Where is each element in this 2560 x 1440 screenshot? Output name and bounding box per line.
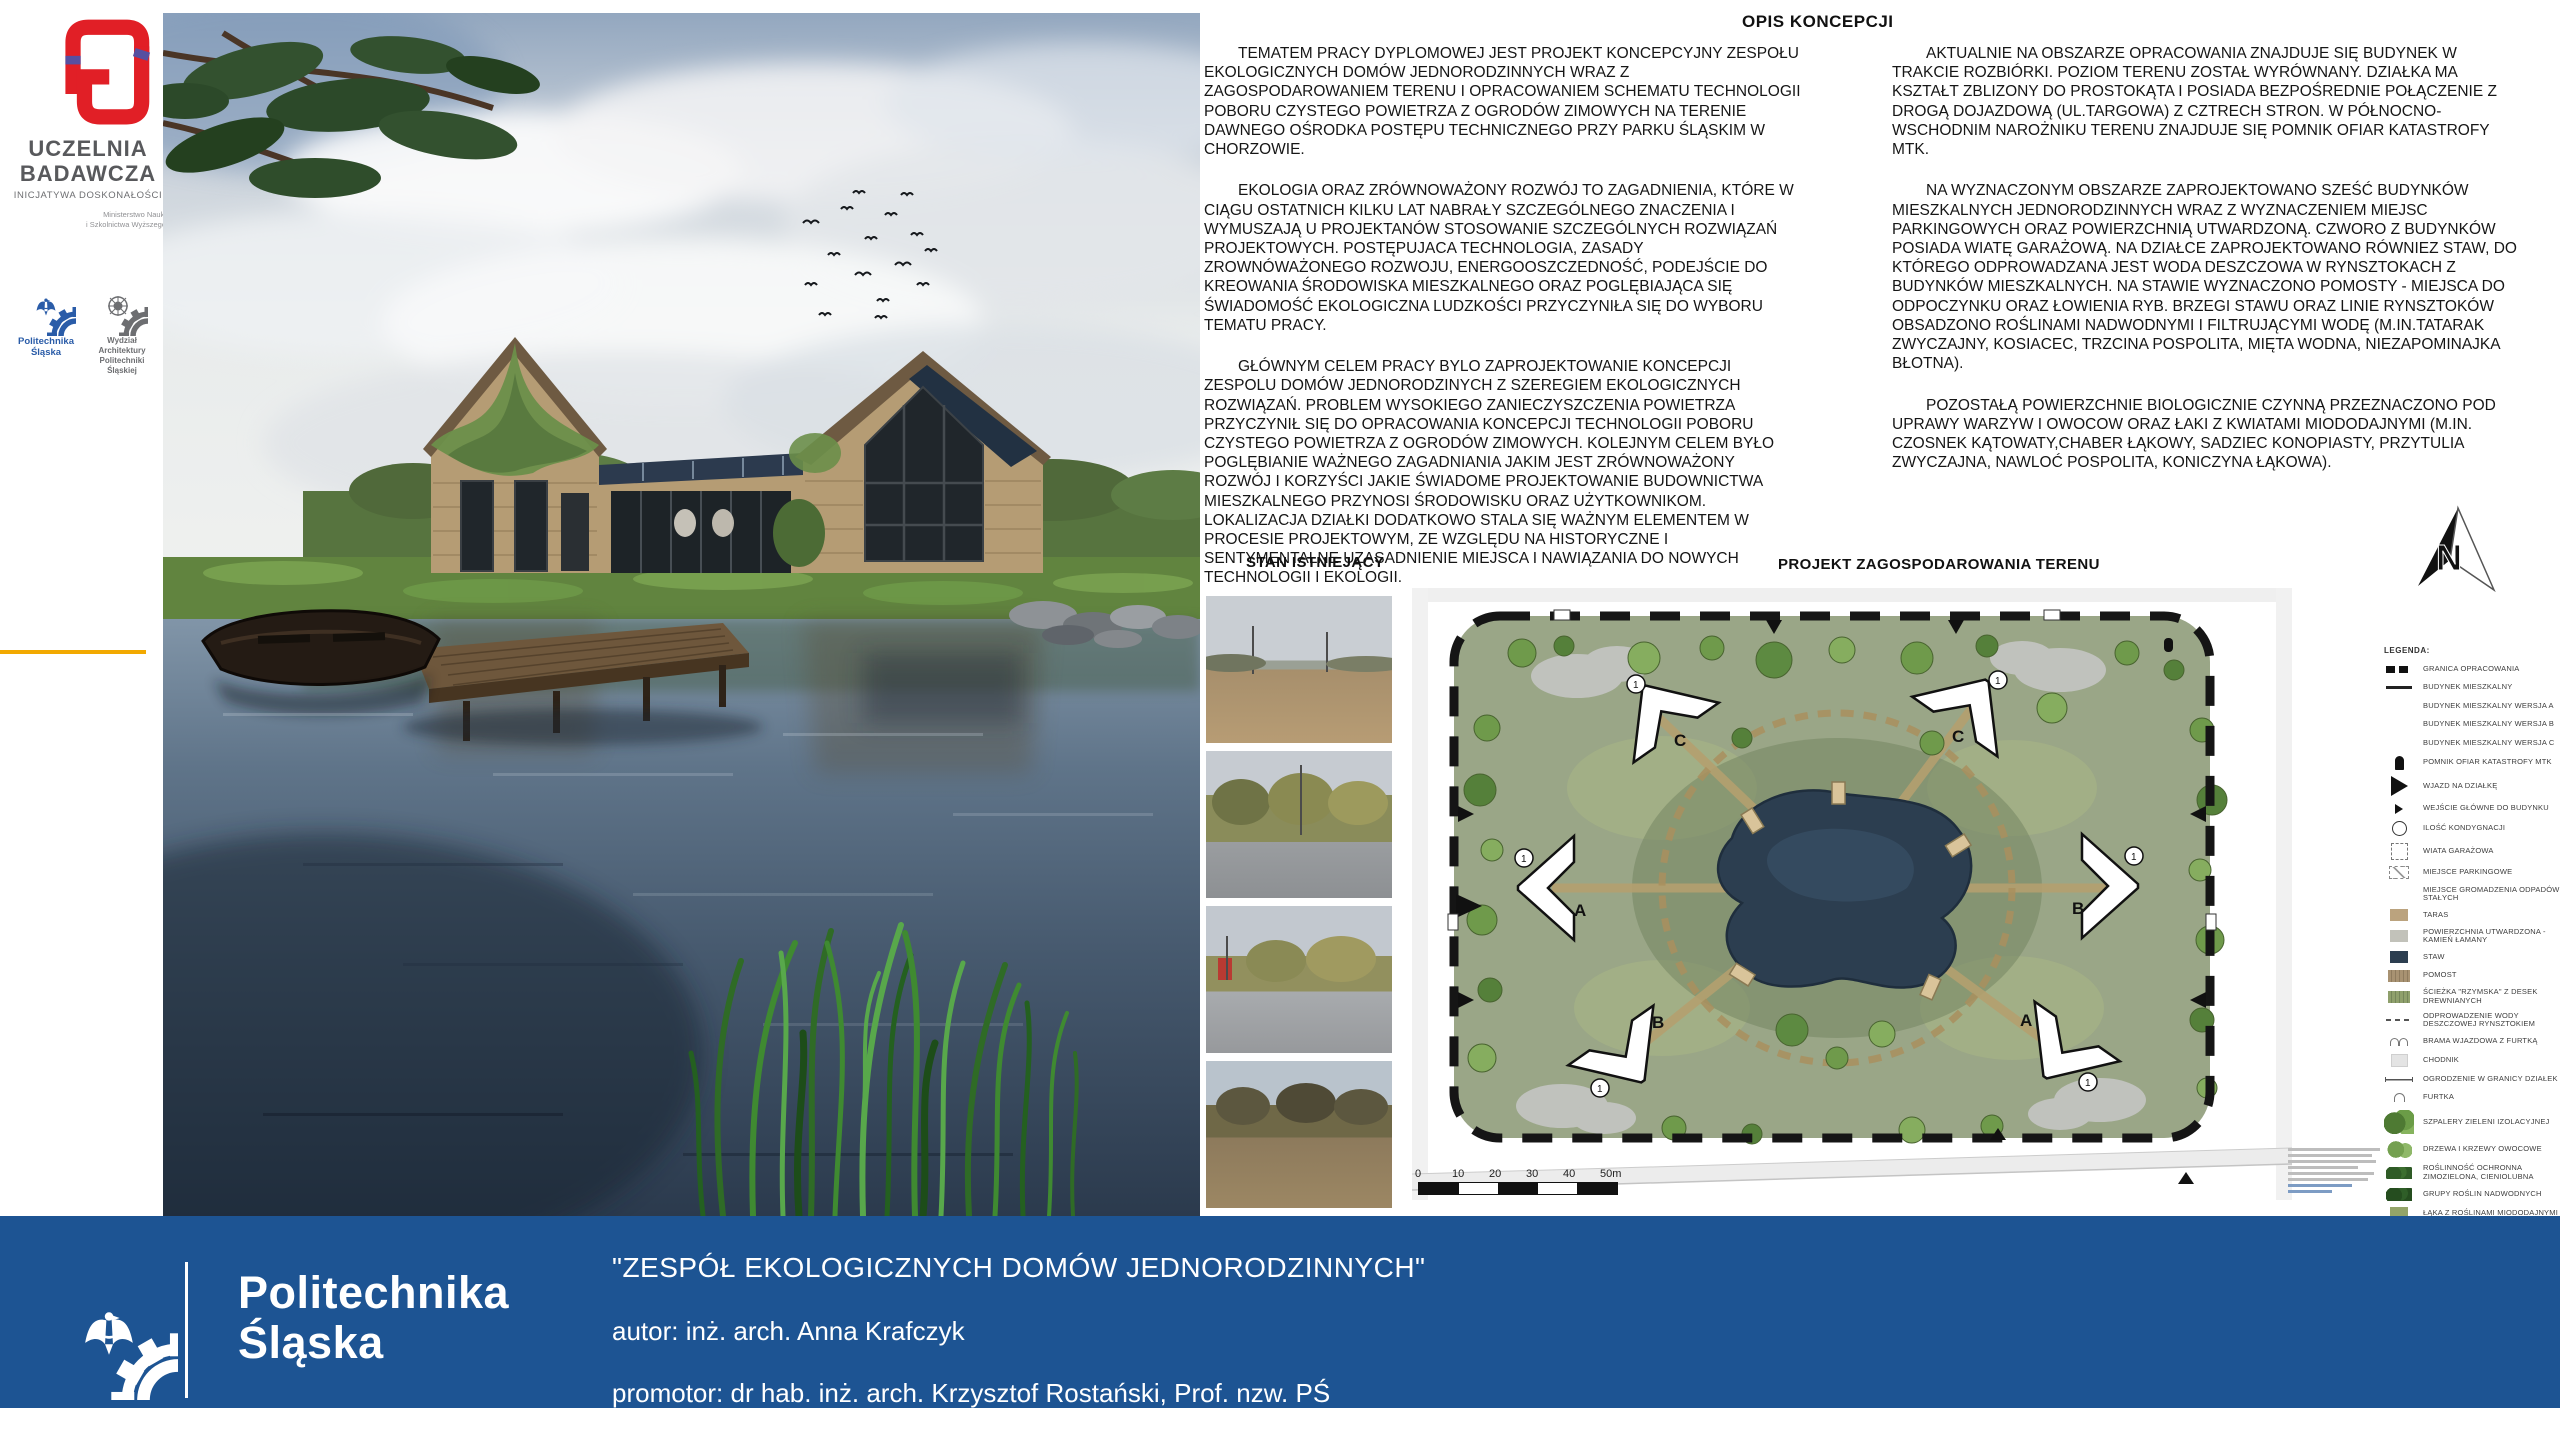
legend-item: FURTKA: [2384, 1092, 2560, 1104]
svg-text:1: 1: [1995, 676, 2001, 687]
legend-item: WIATA GARAŻOWA: [2384, 843, 2560, 860]
legend-label: ŚCIEŻKA "RZYMSKA" Z DESEK DREWNIANYCH: [2423, 988, 2560, 1005]
politechnika-slaska-logo-icon: [16, 276, 76, 336]
site-photo-4: [1206, 1061, 1392, 1208]
wydzial-architektury-logo-icon: [88, 276, 148, 336]
legend-label: MIEJSCE GROMADZENIA ODPADÓW STAŁYCH: [2423, 886, 2560, 903]
scale-tick: 40: [1563, 1168, 1603, 1182]
legend-symbol: [2384, 1037, 2414, 1046]
opis-paragraph: EKOLOGIA ORAZ ZRÓWNOWAŻONY ROZWÓJ TO ZAG…: [1204, 181, 1804, 335]
legend-item: GRANICA OPRACOWANIA: [2384, 663, 2560, 675]
legend-item: POWIERZCHNIA UTWARDZONA - KAMIEŃ ŁAMANY: [2384, 928, 2560, 945]
legend-item: POMNIK OFIAR KATASTROFY MTK: [2384, 756, 2560, 770]
svg-text:B: B: [1652, 1013, 1664, 1032]
legend-label: GRUPY ROŚLIN NADWODNYCH: [2423, 1190, 2542, 1199]
legend-item: BUDYNEK MIESZKALNY WERSJA A: [2384, 700, 2560, 712]
legend-item: ILOŚĆ KONDYGNACJI: [2384, 821, 2560, 836]
legend-item: MIEJSCE PARKINGOWE: [2384, 866, 2560, 879]
legend-item: OGRODZENIE W GRANICY DZIAŁEK: [2384, 1073, 2560, 1085]
politechnika-slaska-footer-logo-icon: [40, 1262, 178, 1400]
wydzial-architektury-label: Wydział Architektury Politechniki Śląski…: [84, 336, 160, 376]
projekt-heading: PROJEKT ZAGOSPODAROWANIA TERENU: [1778, 556, 2100, 573]
svg-text:N: N: [2436, 537, 2462, 578]
legend-label: DRZEWA I KRZEWY OWOCOWE: [2423, 1145, 2542, 1154]
svg-text:1: 1: [2085, 1078, 2091, 1089]
legend-symbol: [2384, 821, 2414, 836]
legend-item: TARAS: [2384, 909, 2560, 921]
legend-symbol: [2384, 843, 2414, 860]
scale-tick: 0: [1415, 1168, 1455, 1182]
site-photo-2: [1206, 751, 1392, 898]
legend-symbol: [2384, 1167, 2414, 1179]
legend-item: BRAMA WJAZDOWA Z FURTKĄ: [2384, 1035, 2560, 1047]
legend-symbol: [2384, 1054, 2414, 1067]
legend-label: BRAMA WJAZDOWA Z FURTKĄ: [2423, 1037, 2538, 1046]
legend-label: POMOST: [2423, 971, 2457, 980]
opis-paragraph: POZOSTAŁĄ POWIERZCHNIE BIOLOGICZNIE CZYN…: [1892, 396, 2517, 473]
uczelnia-badawcza-logo-icon: [26, 12, 162, 134]
legend-label: OGRODZENIE W GRANICY DZIAŁEK: [2423, 1075, 2558, 1084]
thesis-title: "ZESPÓŁ EKOLOGICZNYCH DOMÓW JEDNORODZINN…: [612, 1252, 1426, 1284]
stan-istniejacy-heading: STAN ISTNIEJĄCY: [1246, 554, 1384, 571]
legend-symbol: [2384, 756, 2414, 770]
legend-symbol: [2384, 1110, 2414, 1134]
svg-text:A: A: [1574, 901, 1586, 920]
svg-text:B: B: [2072, 899, 2084, 918]
legend-symbol: [2384, 1188, 2414, 1201]
svg-text:C: C: [1674, 731, 1686, 750]
opis-column-2: AKTUALNIE NA OBSZARZE OPRACOWANIA ZNAJDU…: [1892, 44, 2517, 494]
legend-item: SZPALERY ZIELENI IZOLACYJNEJ: [2384, 1110, 2560, 1134]
legend-item: BUDYNEK MIESZKALNY WERSJA C: [2384, 737, 2560, 749]
legend-label: WIATA GARAŻOWA: [2423, 847, 2494, 856]
legend-symbol: [2384, 1019, 2414, 1022]
legend-item: DRZEWA I KRZEWY OWOCOWE: [2384, 1141, 2560, 1158]
scale-tick: 20: [1489, 1168, 1529, 1182]
footer-logo-divider: [185, 1262, 188, 1398]
legend-label: GRANICA OPRACOWANIA: [2423, 665, 2519, 674]
inicjatywa-doskonalosci-label: INICJATYWA DOSKONAŁOŚCI: [10, 190, 166, 201]
legend-symbol: [2384, 776, 2414, 796]
ministry-label: Ministerstwo Nauki i Szkolnictwa Wyższeg…: [20, 210, 166, 230]
legend-item: GRUPY ROŚLIN NADWODNYCH: [2384, 1188, 2560, 1201]
svg-text:1: 1: [1633, 680, 1639, 691]
legend-item: MIEJSCE GROMADZENIA ODPADÓW STAŁYCH: [2384, 886, 2560, 903]
legend-label: CHODNIK: [2423, 1056, 2459, 1065]
legend-label: STAW: [2423, 953, 2445, 962]
legend-label: WJAZD NA DZIAŁKĘ: [2423, 782, 2497, 791]
legend-label: ROŚLINNOŚĆ OCHRONNA ZIMOZIELONA, CIENIOL…: [2423, 1164, 2560, 1181]
legend-label: WEJŚCIE GŁÓWNE DO BUDYNKU: [2423, 804, 2549, 813]
svg-text:1: 1: [1521, 854, 1527, 865]
legend-item: POMOST: [2384, 970, 2560, 982]
legend-item: BUDYNEK MIESZKALNY WERSJA B: [2384, 719, 2560, 731]
legend-symbol: [2384, 804, 2414, 814]
legend-symbol: [2384, 686, 2414, 689]
legend-title: LEGENDA:: [2384, 646, 2560, 655]
legend-symbol: [2384, 951, 2414, 963]
north-arrow-icon: N: [2400, 502, 2504, 594]
scale-labels: 01020304050m: [1418, 1168, 1648, 1182]
svg-text:1: 1: [2131, 852, 2137, 863]
opis-paragraph: NA WYZNACZONYM OBSZARZE ZAPROJEKTOWANO S…: [1892, 181, 2517, 373]
legend-symbol: [2384, 1077, 2414, 1082]
scale-segments: [1418, 1182, 1618, 1195]
legend-item: ROŚLINNOŚĆ OCHRONNA ZIMOZIELONA, CIENIOL…: [2384, 1164, 2560, 1181]
svg-text:C: C: [1952, 727, 1964, 746]
monument-marker: [2164, 638, 2173, 652]
thesis-author: autor: inż. arch. Anna Krafczyk: [612, 1316, 965, 1347]
legend-symbol: [2384, 909, 2414, 921]
uczelnia-badawcza-wordmark: UCZELNIA BADAWCZA: [10, 136, 166, 186]
legend-label: BUDYNEK MIESZKALNY WERSJA C: [2423, 739, 2555, 748]
amber-accent-line: [0, 650, 146, 654]
uczelnia-line1: UCZELNIA: [10, 136, 166, 161]
legend-item: CHODNIK: [2384, 1054, 2560, 1067]
svg-text:1: 1: [1597, 1084, 1603, 1095]
opis-paragraph: TEMATEM PRACY DYPLOMOWEJ JEST PROJEKT KO…: [1204, 44, 1804, 159]
legend-label: BUDYNEK MIESZKALNY: [2423, 683, 2512, 692]
site-plan: C C A B B A 1 1 1 1 1 1: [1412, 588, 2292, 1200]
uczelnia-line2: BADAWCZA: [10, 161, 166, 186]
legend-symbol: [2384, 1093, 2414, 1102]
legend-item: ŚCIEŻKA "RZYMSKA" Z DESEK DREWNIANYCH: [2384, 988, 2560, 1005]
legend-label: FURTKA: [2423, 1093, 2454, 1102]
legend-label: TARAS: [2423, 911, 2448, 920]
legend-symbol: [2384, 970, 2414, 982]
footer-university-name: Politechnika Śląska: [238, 1268, 509, 1368]
politechnika-slaska-label: Politechnika Śląska: [8, 336, 84, 358]
legend-item: WEJŚCIE GŁÓWNE DO BUDYNKU: [2384, 803, 2560, 815]
legend-symbol: [2384, 1141, 2414, 1158]
legend-symbol: [2384, 866, 2414, 879]
legend-label: SZPALERY ZIELENI IZOLACYJNEJ: [2423, 1118, 2549, 1127]
legend-symbol: [2384, 666, 2414, 673]
legend-label: BUDYNEK MIESZKALNY WERSJA B: [2423, 720, 2554, 729]
scale-bar: 01020304050m: [1418, 1168, 1648, 1195]
legend-label: ODPROWADZENIE WODY DESZCZOWEJ RYNSZTOKIE…: [2423, 1012, 2560, 1029]
site-photo-3: [1206, 906, 1392, 1053]
svg-text:A: A: [2020, 1011, 2032, 1030]
opis-koncepcji-heading: OPIS KONCEPCJI: [1742, 12, 2042, 32]
legend-item: ODPROWADZENIE WODY DESZCZOWEJ RYNSZTOKIE…: [2384, 1012, 2560, 1029]
scale-tick: 10: [1452, 1168, 1492, 1182]
legend-item: WJAZD NA DZIAŁKĘ: [2384, 776, 2560, 796]
site-photo-1: [1206, 596, 1392, 743]
plan-legend: LEGENDA: GRANICA OPRACOWANIA BUDYNEK MIE…: [2384, 646, 2560, 1226]
legend-label: POWIERZCHNIA UTWARDZONA - KAMIEŃ ŁAMANY: [2423, 928, 2560, 945]
thesis-promoter: promotor: dr hab. inż. arch. Krzysztof R…: [612, 1378, 1330, 1409]
opis-column-1: TEMATEM PRACY DYPLOMOWEJ JEST PROJEKT KO…: [1204, 44, 1804, 610]
legend-item: BUDYNEK MIESZKALNY: [2384, 682, 2560, 694]
legend-label: BUDYNEK MIESZKALNY WERSJA A: [2423, 702, 2554, 711]
legend-label: POMNIK OFIAR KATASTROFY MTK: [2423, 758, 2552, 767]
opis-paragraph: AKTUALNIE NA OBSZARZE OPRACOWANIA ZNAJDU…: [1892, 44, 2517, 159]
presentation-board: UCZELNIA BADAWCZA INICJATYWA DOSKONAŁOŚC…: [0, 0, 2560, 1440]
scale-tick: 50m: [1600, 1168, 1640, 1182]
plan-notes-illegible: [2288, 1148, 2380, 1196]
hero-render-eco-houses: [163, 13, 1200, 1216]
legend-item: STAW: [2384, 951, 2560, 963]
scale-tick: 30: [1526, 1168, 1566, 1182]
legend-symbol: [2384, 930, 2414, 942]
legend-symbol: [2384, 991, 2414, 1003]
legend-label: ILOŚĆ KONDYGNACJI: [2423, 824, 2505, 833]
rowboat: [203, 611, 439, 715]
legend-label: MIEJSCE PARKINGOWE: [2423, 868, 2512, 877]
